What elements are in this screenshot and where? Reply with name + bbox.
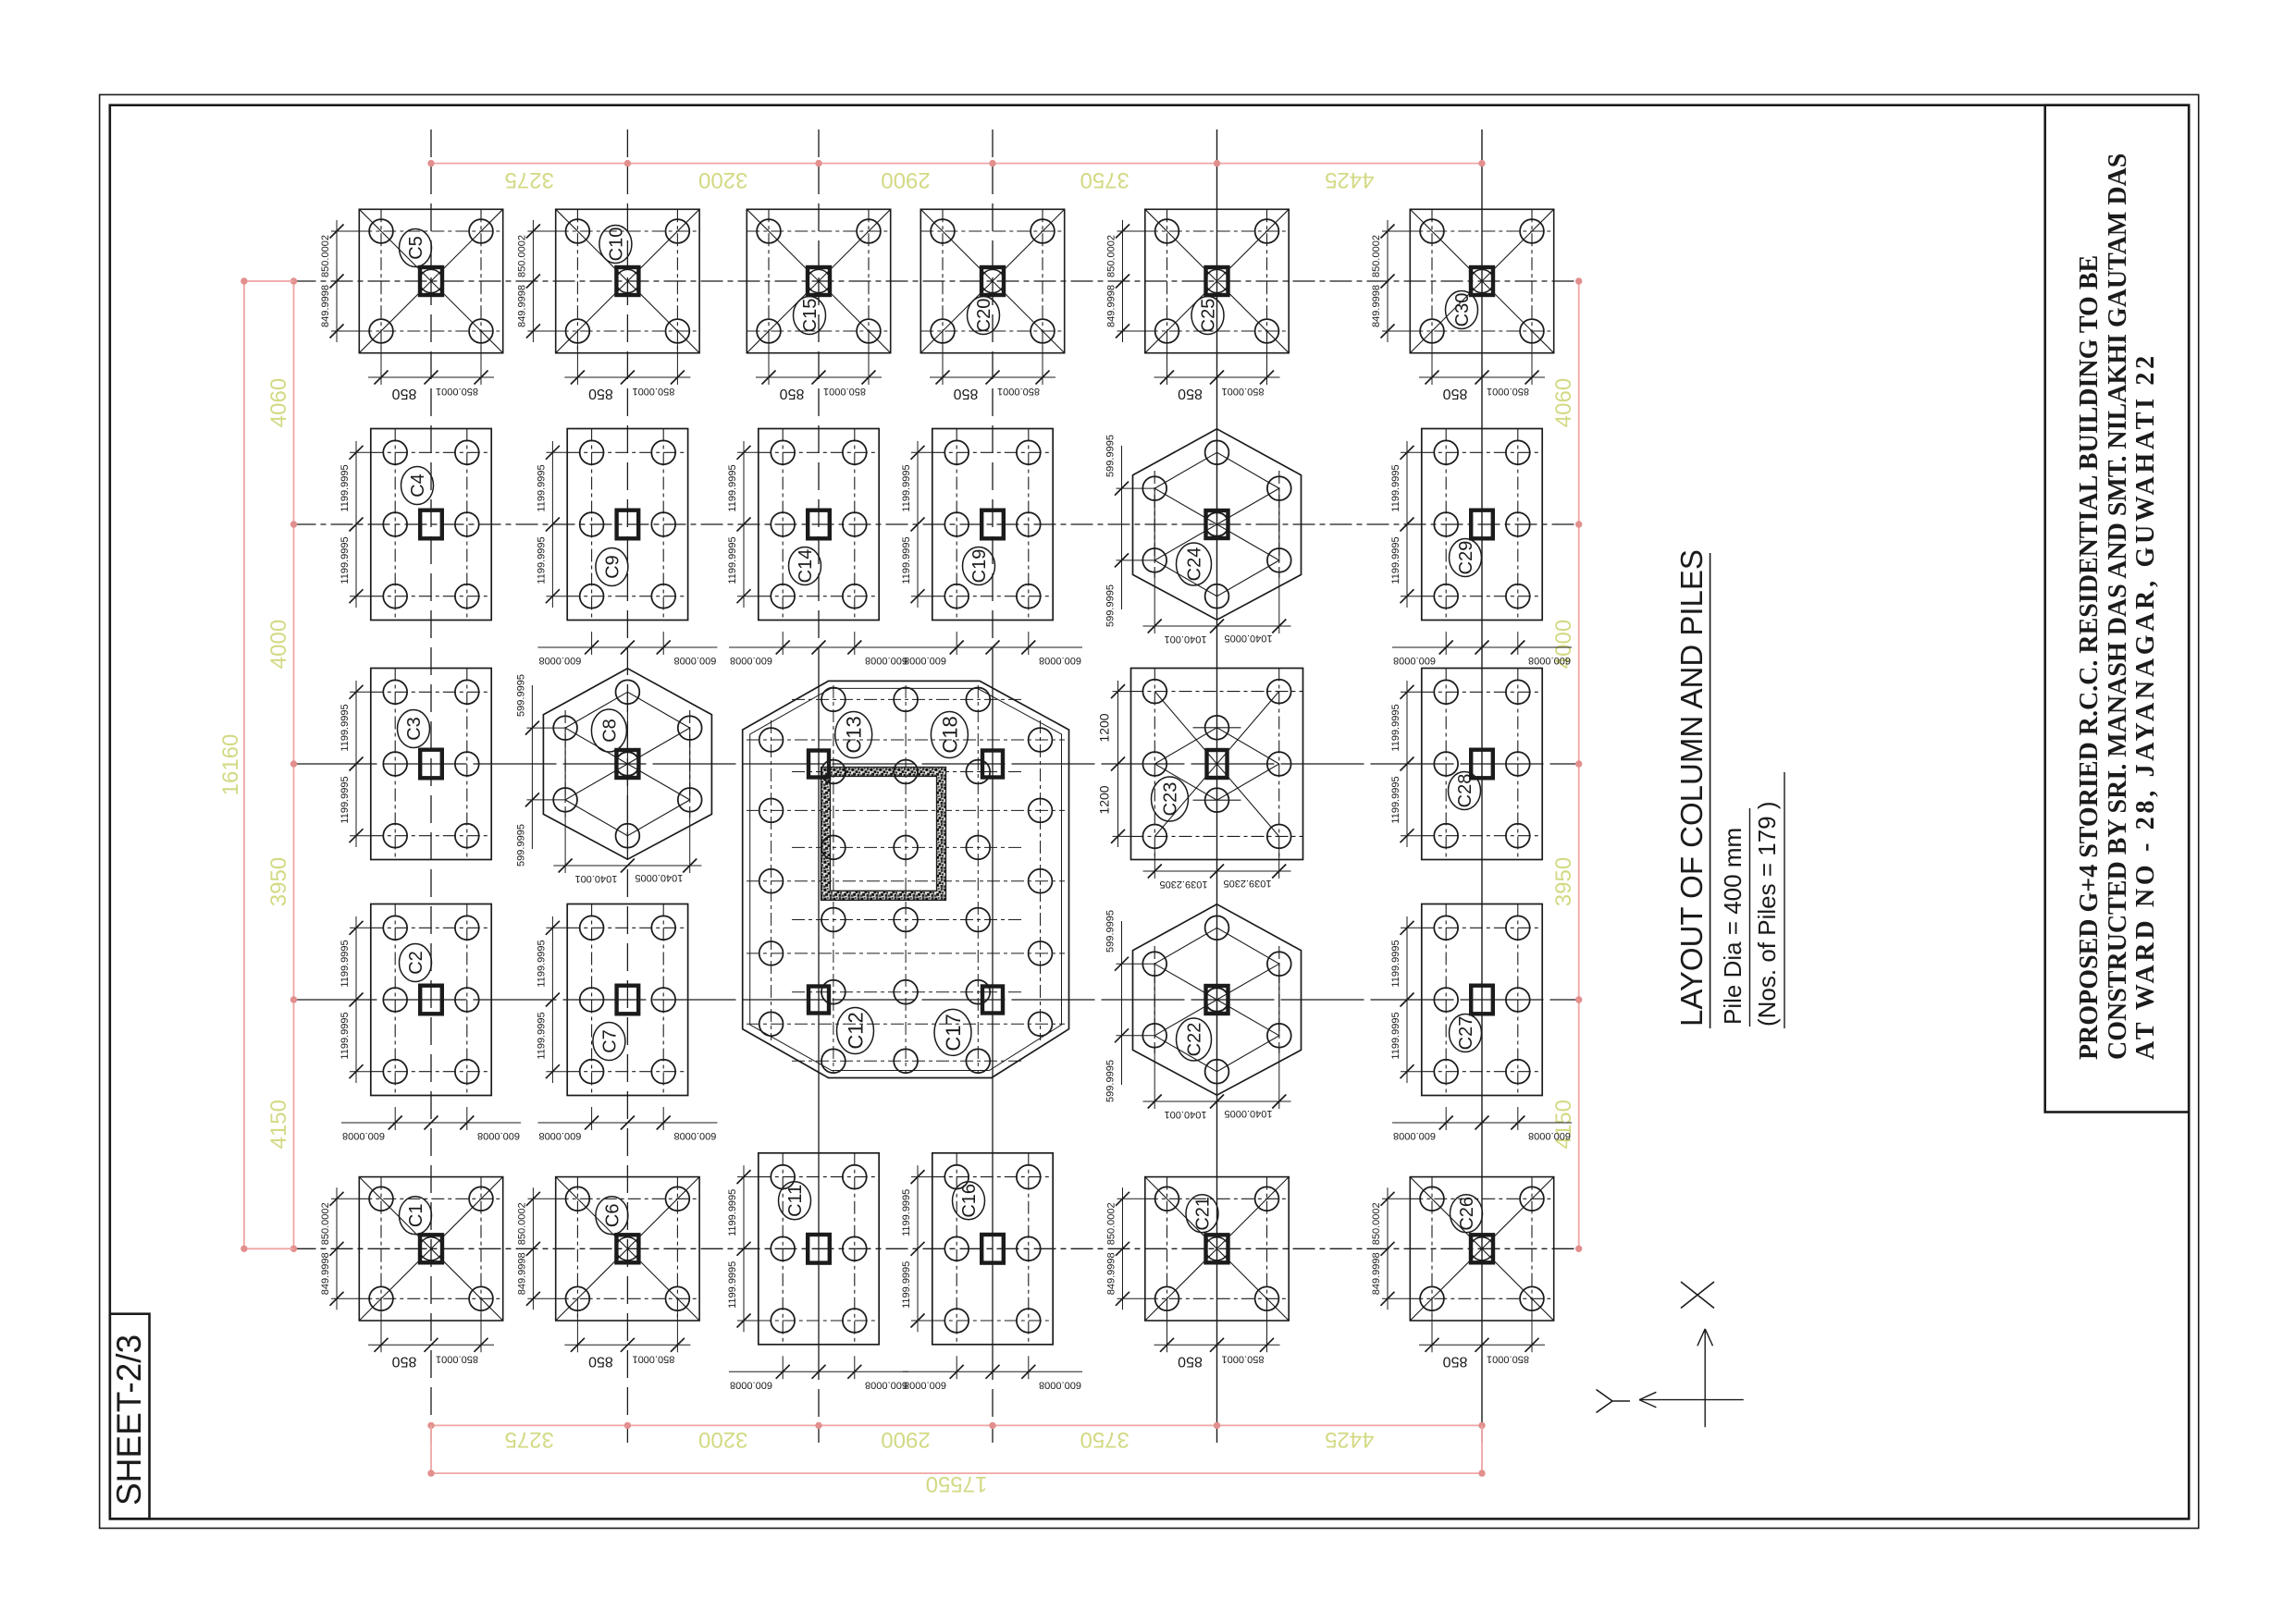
svg-text:1200: 1200 [1097,713,1112,742]
svg-text:C16: C16 [959,1184,980,1218]
svg-text:1199.9995: 1199.9995 [1390,776,1401,823]
svg-text:600.0008: 600.0008 [1393,655,1436,666]
svg-text:C28: C28 [1455,774,1475,808]
svg-text:3750: 3750 [1080,1427,1129,1452]
svg-text:C21: C21 [1193,1197,1214,1231]
svg-text:C1: C1 [406,1204,426,1228]
svg-text:AT WARD NO - 28, JAYANAGAR, GU: AT WARD NO - 28, JAYANAGAR, GUWAHATI 22 [2131,352,2160,1060]
svg-text:850: 850 [780,386,805,401]
svg-text:850: 850 [588,386,613,401]
svg-text:C12: C12 [844,1012,867,1049]
svg-text:1040.0005: 1040.0005 [1225,1108,1273,1119]
svg-text:850.0001: 850.0001 [436,1353,478,1364]
svg-text:C20: C20 [974,299,994,333]
svg-text:C13: C13 [843,716,866,753]
svg-text:850: 850 [954,386,979,401]
svg-text:1200: 1200 [1097,785,1112,814]
svg-text:1199.9995: 1199.9995 [1390,704,1401,751]
svg-text:C15: C15 [800,299,821,333]
svg-text:850.0002: 850.0002 [320,235,331,277]
svg-text:850.0001: 850.0001 [997,386,1040,397]
svg-text:850.0002: 850.0002 [1371,1202,1382,1245]
svg-text:C18: C18 [938,716,961,753]
svg-text:850: 850 [1443,1353,1468,1369]
svg-text:850.0002: 850.0002 [1371,235,1382,277]
svg-text:C2: C2 [406,951,426,975]
svg-text:1199.9995: 1199.9995 [901,464,912,511]
svg-text:C11: C11 [785,1185,806,1217]
svg-text:1199.9995: 1199.9995 [1390,940,1401,987]
svg-text:850.0002: 850.0002 [1106,1202,1117,1245]
svg-text:850.0001: 850.0001 [1487,1353,1529,1364]
svg-text:C6: C6 [603,1204,623,1228]
svg-text:C4: C4 [408,473,428,498]
svg-text:1199.9995: 1199.9995 [727,1189,738,1236]
svg-text:3200: 3200 [698,1427,747,1452]
svg-text:1040.0005: 1040.0005 [1225,633,1273,644]
svg-text:1040.001: 1040.001 [1165,633,1207,645]
svg-text:1199.9995: 1199.9995 [901,1261,912,1309]
svg-text:C14: C14 [796,549,816,584]
svg-text:(Nos. of Piles = 179 ): (Nos. of Piles = 179 ) [1753,802,1781,1027]
svg-text:850.0001: 850.0001 [632,386,674,397]
svg-text:1199.9995: 1199.9995 [536,536,547,584]
svg-text:1199.9995: 1199.9995 [536,1012,547,1059]
svg-text:2900: 2900 [881,167,930,192]
svg-text:1040.001: 1040.001 [1165,1109,1207,1120]
svg-text:599.9995: 599.9995 [515,674,526,717]
svg-text:C9: C9 [603,555,623,579]
svg-text:LAYOUT OF COLUMN AND PILES: LAYOUT OF COLUMN AND PILES [1674,549,1709,1027]
svg-text:600.0008: 600.0008 [538,655,581,666]
svg-text:1040.0005: 1040.0005 [635,872,683,883]
svg-text:600.0008: 600.0008 [673,655,716,666]
svg-text:600.0008: 600.0008 [1528,655,1571,666]
svg-text:850.0001: 850.0001 [823,386,866,397]
svg-text:16160: 16160 [218,734,243,796]
svg-text:1199.9995: 1199.9995 [727,464,738,511]
svg-text:850.0001: 850.0001 [1487,386,1529,397]
svg-text:C22: C22 [1185,1023,1205,1057]
svg-text:599.9995: 599.9995 [1105,910,1117,953]
svg-text:C24: C24 [1185,547,1205,582]
svg-text:599.9995: 599.9995 [1105,1060,1117,1102]
svg-text:850.0002: 850.0002 [516,235,527,277]
svg-text:4150: 4150 [266,1100,291,1149]
svg-text:4060: 4060 [1551,378,1576,427]
svg-text:1039.2305: 1039.2305 [1160,879,1208,890]
svg-text:1199.9995: 1199.9995 [901,536,912,584]
svg-text:849.9998: 849.9998 [1106,1252,1117,1295]
svg-text:4425: 4425 [1325,167,1374,192]
svg-text:C3: C3 [404,717,425,741]
svg-text:850.0001: 850.0001 [436,386,478,397]
svg-text:600.0008: 600.0008 [904,1379,946,1390]
svg-text:C10: C10 [607,227,627,262]
svg-text:599.9995: 599.9995 [515,824,526,867]
svg-text:1199.9995: 1199.9995 [339,536,351,584]
svg-text:600.0008: 600.0008 [1528,1130,1571,1141]
svg-text:3950: 3950 [266,857,291,906]
svg-text:1039.2305: 1039.2305 [1224,878,1272,889]
svg-text:600.0008: 600.0008 [673,1130,716,1141]
svg-text:1199.9995: 1199.9995 [536,940,547,987]
svg-text:600.0008: 600.0008 [1393,1130,1436,1141]
svg-text:850.0001: 850.0001 [632,1353,674,1364]
svg-text:2900: 2900 [881,1427,930,1452]
svg-text:C19: C19 [969,549,990,584]
svg-text:1040.001: 1040.001 [574,873,617,884]
svg-text:599.9995: 599.9995 [1105,584,1117,627]
svg-text:1199.9995: 1199.9995 [339,464,351,511]
svg-text:3950: 3950 [1551,857,1576,906]
svg-text:1199.9995: 1199.9995 [727,1261,738,1309]
svg-text:1199.9995: 1199.9995 [339,776,351,823]
svg-text:850.0002: 850.0002 [1106,235,1117,277]
svg-text:850.0001: 850.0001 [1222,386,1265,397]
svg-text:1199.9995: 1199.9995 [1390,536,1401,584]
svg-text:3200: 3200 [698,167,747,192]
svg-text:1199.9995: 1199.9995 [901,1189,912,1236]
svg-text:849.9998: 849.9998 [516,285,527,327]
svg-text:850: 850 [1443,386,1468,401]
svg-text:849.9998: 849.9998 [320,285,331,327]
svg-text:1199.9995: 1199.9995 [1390,464,1401,511]
svg-text:C8: C8 [600,719,621,743]
svg-text:C7: C7 [600,1029,621,1053]
svg-text:600.0008: 600.0008 [538,1130,581,1141]
svg-text:4060: 4060 [266,378,291,427]
svg-text:850.0001: 850.0001 [1222,1353,1265,1364]
svg-text:600.0008: 600.0008 [865,655,907,666]
svg-text:850: 850 [392,386,417,401]
svg-text:CONSTRUCTED BY SRI. MANASH DAS: CONSTRUCTED BY SRI. MANASH DAS AND SMT. … [2104,154,2132,1060]
svg-text:C17: C17 [942,1014,965,1051]
svg-text:C30: C30 [1452,293,1473,327]
svg-text:4425: 4425 [1325,1427,1374,1452]
svg-text:SHEET-2/3: SHEET-2/3 [110,1334,148,1506]
svg-text:1199.9995: 1199.9995 [727,536,738,584]
svg-text:C29: C29 [1456,541,1476,575]
svg-text:3750: 3750 [1080,167,1129,192]
svg-text:1199.9995: 1199.9995 [1390,1012,1401,1059]
svg-text:600.0008: 600.0008 [865,1379,907,1390]
svg-text:600.0008: 600.0008 [730,1379,772,1390]
svg-text:Pile Dia = 400 mm: Pile Dia = 400 mm [1719,828,1747,1025]
svg-text:4000: 4000 [266,620,291,669]
svg-text:600.0008: 600.0008 [477,1130,520,1141]
svg-text:850.0002: 850.0002 [320,1202,331,1245]
svg-text:C23: C23 [1161,782,1181,817]
svg-text:17550: 17550 [926,1471,988,1496]
svg-text:850: 850 [1178,1353,1203,1369]
svg-text:849.9998: 849.9998 [1371,1252,1382,1295]
svg-text:849.9998: 849.9998 [1106,285,1117,327]
svg-text:849.9998: 849.9998 [516,1252,527,1295]
svg-text:849.9998: 849.9998 [320,1252,331,1295]
svg-text:600.0008: 600.0008 [1039,1379,1081,1390]
svg-text:PROPOSED G+4 STORIED R.C.C.: PROPOSED G+4 STORIED R.C.C. RESIDENTIAL … [2075,255,2104,1060]
svg-text:1199.9995: 1199.9995 [339,1012,351,1059]
svg-text:1199.9995: 1199.9995 [536,464,547,511]
svg-text:850: 850 [392,1353,417,1369]
svg-text:850.0002: 850.0002 [516,1202,527,1245]
svg-text:850: 850 [1178,386,1203,401]
svg-text:850: 850 [588,1353,613,1369]
svg-text:849.9998: 849.9998 [1371,285,1382,327]
svg-text:599.9995: 599.9995 [1105,435,1117,477]
svg-text:600.0008: 600.0008 [342,1130,385,1141]
svg-text:3275: 3275 [505,167,554,192]
svg-text:C27: C27 [1456,1016,1476,1051]
svg-text:3275: 3275 [505,1427,554,1452]
svg-text:1199.9995: 1199.9995 [339,704,351,751]
svg-text:600.0008: 600.0008 [1039,655,1081,666]
svg-text:C26: C26 [1457,1197,1477,1231]
svg-text:C25: C25 [1199,299,1219,333]
svg-text:C5: C5 [406,236,426,260]
svg-text:600.0008: 600.0008 [730,655,772,666]
svg-text:600.0008: 600.0008 [904,655,946,666]
svg-text:1199.9995: 1199.9995 [339,940,351,987]
